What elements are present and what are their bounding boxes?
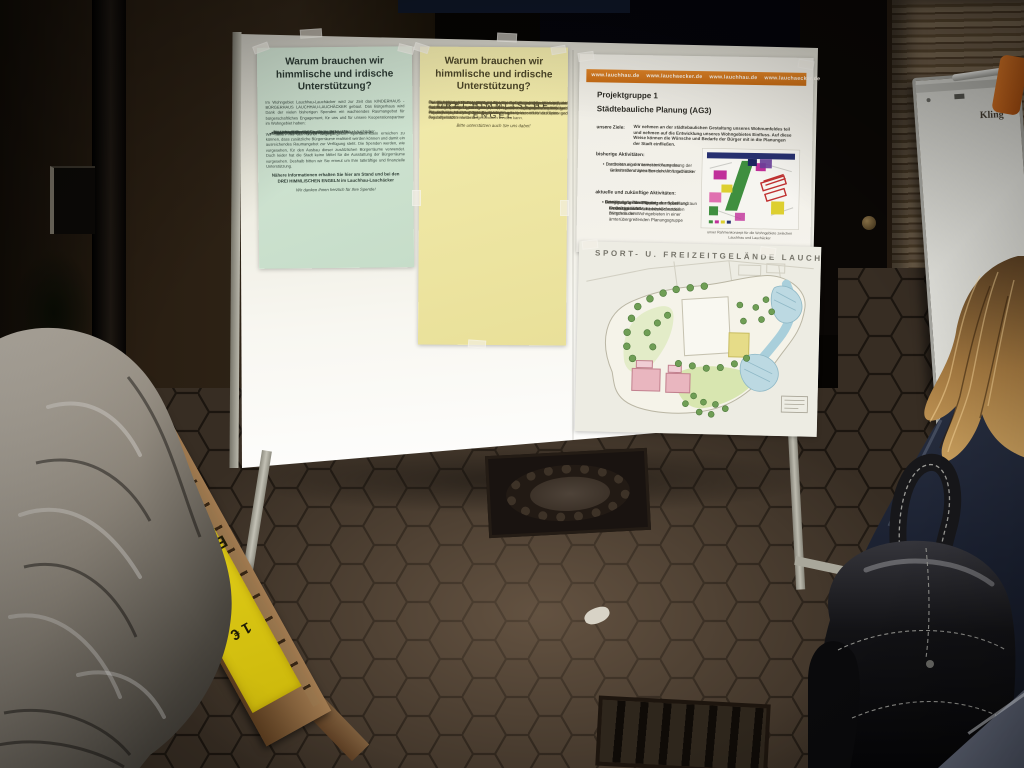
project-past-items: Durchsetzung der korrekten Ausweisung de… — [600, 161, 700, 163]
poster-project: www.lauchhau.de www.lauchaecker.de www.l… — [576, 54, 813, 256]
poster-green-closing: Wir danken Ihnen herzlich für Ihre Spend… — [266, 186, 405, 192]
project-url-bar: www.lauchhau.de www.lauchaecker.de www.l… — [586, 69, 806, 86]
project-goals: Wir nehmen an der städtebaulichen Gestal… — [633, 124, 793, 149]
person-left-jacket — [0, 315, 250, 768]
poster-yellow-paragraphs: Die Stadt Stuttgart hat in Vaihingen Wes… — [429, 99, 559, 100]
tape — [468, 339, 487, 348]
poster-yellow-title: Warum brauchen wir himmlische und irdisc… — [429, 56, 559, 94]
tape — [560, 200, 569, 216]
tape — [497, 32, 517, 42]
flipchart-screw — [926, 98, 930, 102]
wall-box — [50, 166, 95, 234]
night-photo-scene: Kling Warum brauchen wir himmlische und … — [0, 0, 1024, 768]
siteplan-drawing: SPORT- U. FREIZEITGELÄNDE LAUCHÄCKER — [575, 241, 822, 437]
project-zoning-map — [701, 148, 800, 230]
poster-yellow: Warum brauchen wir himmlische und irdisc… — [418, 46, 568, 345]
project-subheading: Städtebauliche Planung (AG3) — [597, 104, 712, 115]
poster-siteplan: SPORT- U. FREIZEITGELÄNDE LAUCHÄCKER — [575, 241, 822, 437]
project-current-items: Beteiligung bei der Planung der neuen Ki… — [599, 199, 701, 201]
flipchart-clip — [954, 94, 964, 100]
poster-yellow-closing: Bitte unterstützen auch Sie uns dabei! — [428, 122, 558, 128]
tape — [300, 28, 323, 39]
sky-sliver — [398, 0, 630, 13]
manhole-cover — [485, 448, 651, 538]
poster-green-intro: Im Wohngebiet Lauchhau-Lauchäcker wird z… — [265, 98, 404, 126]
door-knob — [862, 216, 876, 230]
project-heading: Projektgruppe 1 — [597, 90, 658, 100]
drain-grate — [595, 696, 770, 768]
project-goals-label: unsere Ziele: — [596, 124, 624, 129]
board-seam — [572, 50, 574, 450]
project-past-label: bisherige Aktivitäten: — [596, 152, 645, 158]
project-map-caption: unser Rahmenkonzept für die Wohngebiete … — [701, 230, 799, 241]
poster-green: Warum brauchen wir himmlische und irdisc… — [257, 46, 414, 269]
tape — [412, 190, 421, 206]
project-current-label: aktuelle und zukünftige Aktivitäten: — [595, 190, 676, 196]
poster-green-title: Warum brauchen wir himmlische und irdisc… — [265, 55, 404, 94]
tape — [582, 239, 599, 250]
poster-green-info: Nähere Informationen erhalten Sie hier a… — [266, 172, 405, 185]
